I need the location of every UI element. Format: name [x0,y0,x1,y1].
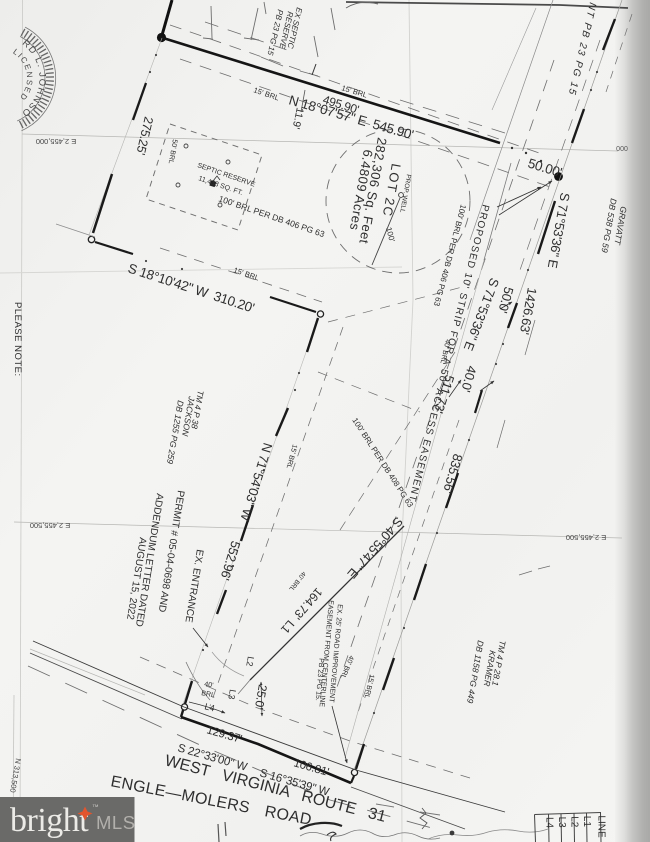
svg-text:E 2,455,000: E 2,455,000 [36,137,76,146]
svg-text:TM: TM [93,803,99,808]
svg-text:PLEASE NOTE:: PLEASE NOTE: [12,302,23,377]
svg-text:MLS: MLS [96,812,136,833]
svg-text:bright: bright [10,802,89,839]
svg-text:E 2,455,500: E 2,455,500 [566,533,606,542]
svg-text:L3: L3 [226,689,238,701]
svg-text:LINE: LINE [596,815,607,838]
svg-text:L3: L3 [556,817,567,829]
svg-text:L2: L2 [569,816,580,828]
svg-text:L4: L4 [544,817,555,829]
svg-text:000: 000 [616,144,628,151]
svg-text:L1: L1 [581,816,592,828]
svg-text:L2: L2 [244,656,256,668]
svg-text:E 2,455,500: E 2,455,500 [30,521,70,530]
